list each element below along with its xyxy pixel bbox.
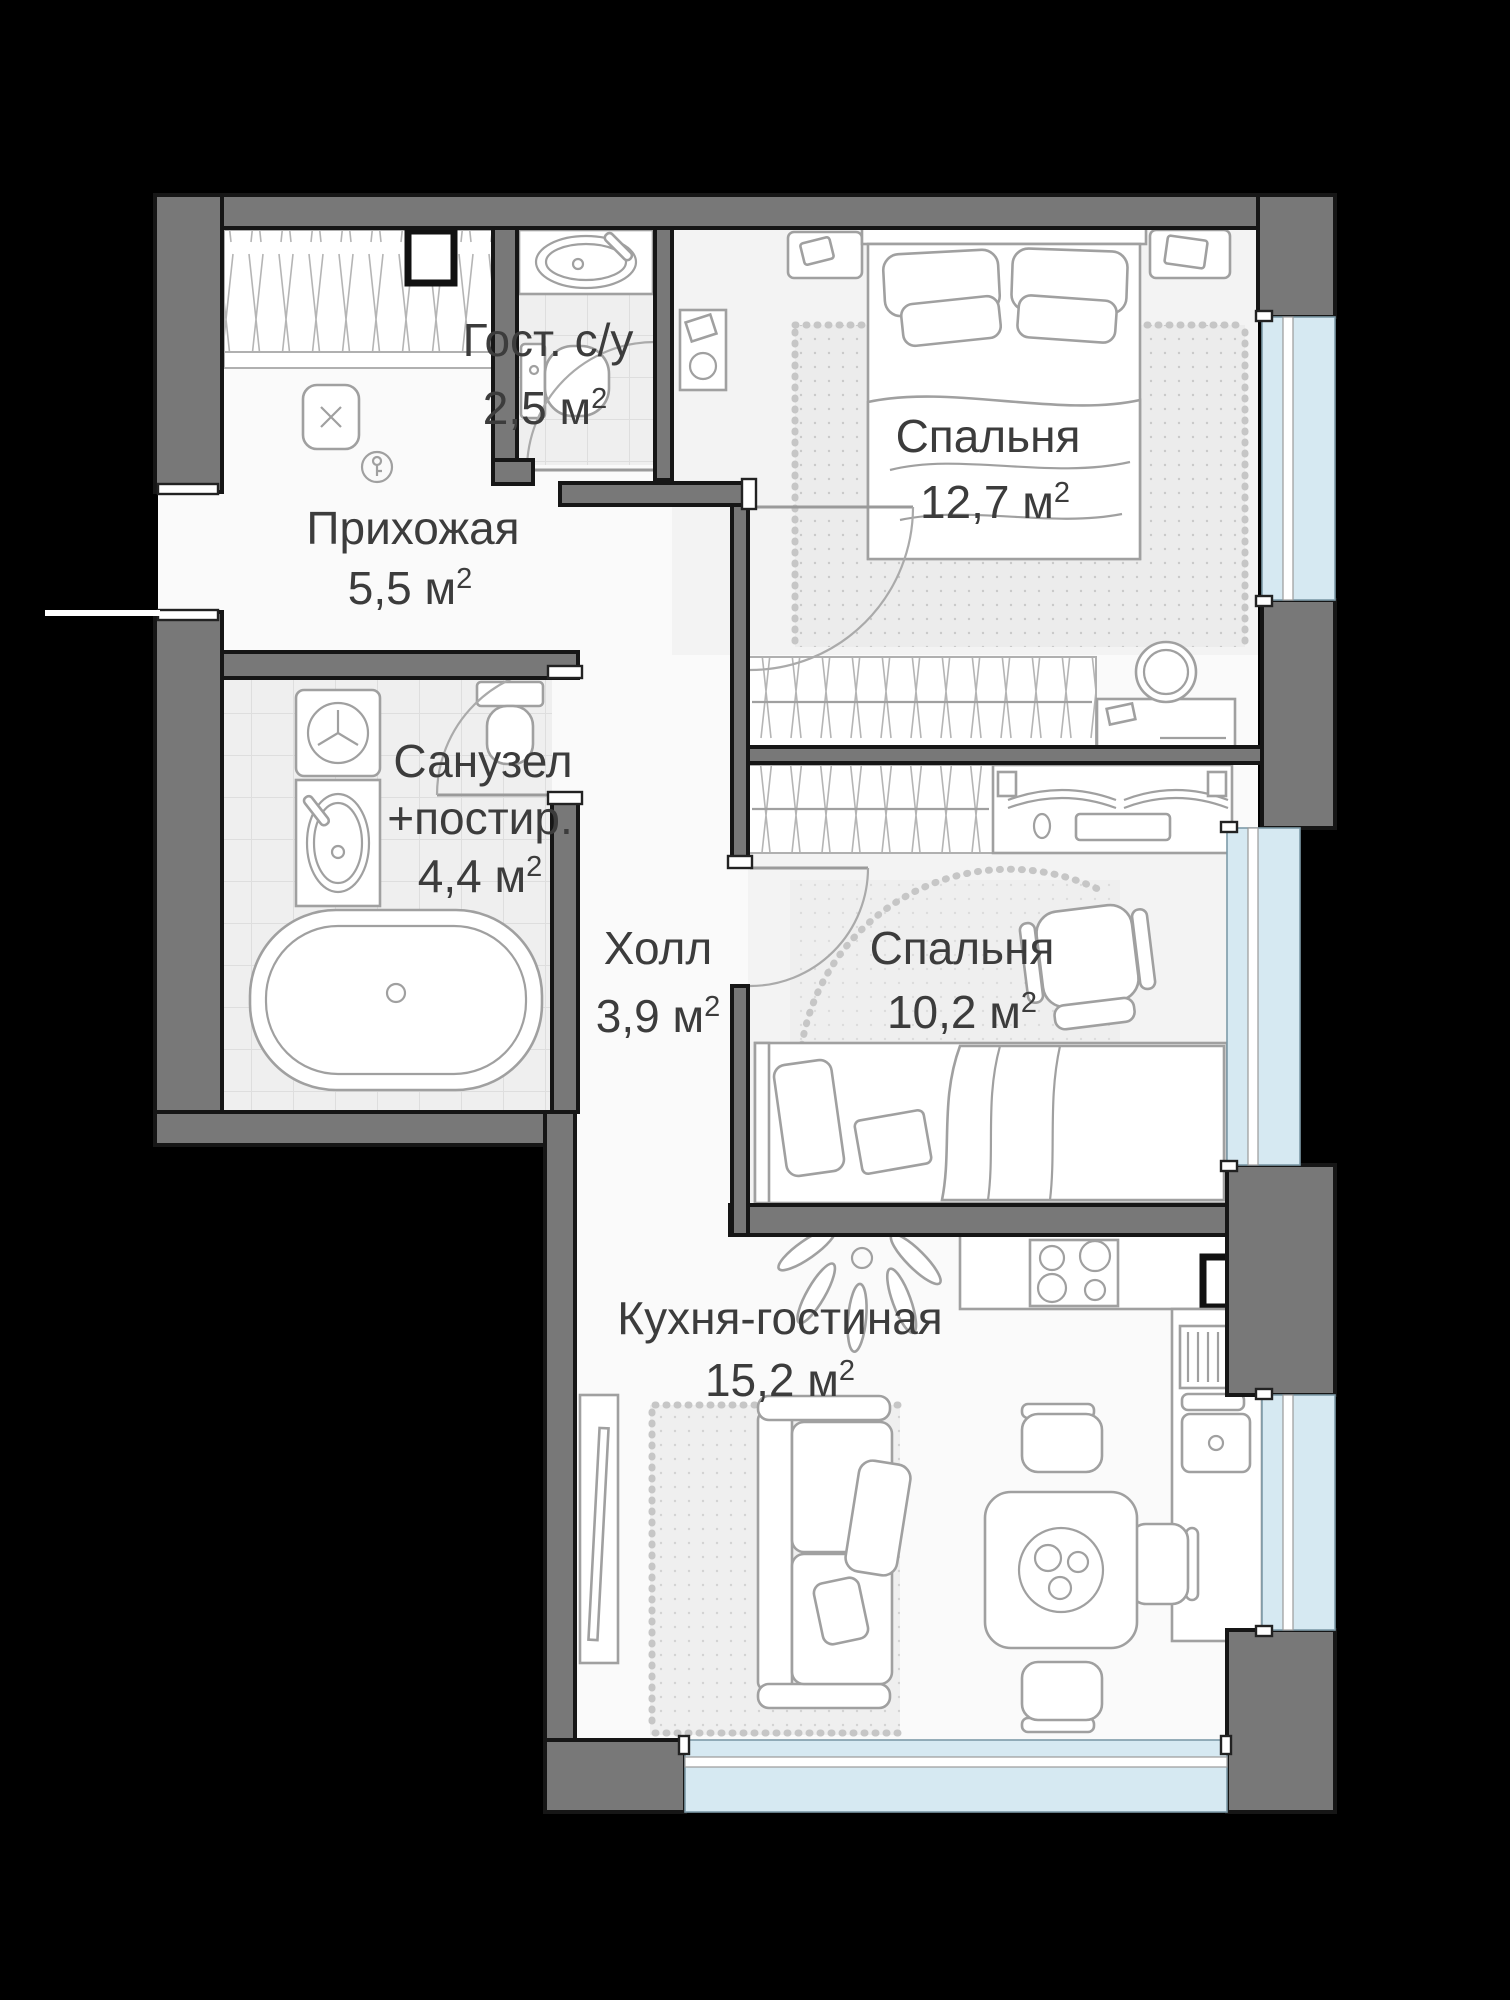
bathtub <box>250 910 542 1090</box>
wall-hall-right-lower <box>732 986 748 1235</box>
entrance-jamb-top <box>158 484 218 494</box>
wall-top <box>155 195 1335 228</box>
wall-hall-stub <box>560 483 750 505</box>
wall-bottom-left <box>545 1740 685 1812</box>
pouf <box>303 385 359 449</box>
room-area-hall: 3,9 м2 <box>596 990 721 1042</box>
bathroom-sink <box>296 780 380 906</box>
entrance-jamb-bottom <box>158 610 218 620</box>
room-label-hallway: Прихожая <box>306 502 519 554</box>
wall-guest-wc-right <box>655 228 672 480</box>
bedroom1-desk <box>680 310 726 390</box>
floor-plan-page: Гост. с/у 2,5 м2 Прихожая 5,5 м2 Спальня… <box>0 0 1510 2000</box>
bedroom2-desk <box>993 765 1232 853</box>
wall-wardrobe-divider <box>748 747 1262 763</box>
room-area-bedroom1: 12,7 м2 <box>920 476 1070 528</box>
room-area-kitchen: 15,2 м2 <box>705 1354 855 1406</box>
wall-bottom-right-block <box>1227 1630 1335 1812</box>
room-label-guest-wc: Гост. с/у <box>463 314 634 366</box>
guest-wc-vanity <box>519 230 653 294</box>
floor-plan-svg: Гост. с/у 2,5 м2 Прихожая 5,5 м2 Спальня… <box>0 0 1510 2000</box>
single-bed <box>755 1043 1227 1203</box>
bathroom-door-jamb-top <box>548 666 582 678</box>
room-label-bathroom-1: Санузел <box>393 735 572 787</box>
wall-kitchen-left <box>545 1112 575 1812</box>
bedroom1-nightstand-right <box>1150 230 1230 278</box>
wall-left-upper <box>155 195 222 492</box>
bedroom1-door-jamb <box>742 479 756 509</box>
room-label-kitchen: Кухня-гостиная <box>617 1292 942 1344</box>
tv-unit <box>580 1395 618 1663</box>
window-kitchen-right <box>1256 1389 1335 1636</box>
room-area-guest-wc: 2,5 м2 <box>483 382 608 434</box>
wall-hall-right-upper <box>732 505 748 866</box>
wall-left-lower <box>155 612 222 1145</box>
bedroom1-nightstand-left <box>788 232 862 278</box>
room-area-hallway: 5,5 м2 <box>348 562 473 614</box>
entrance-door-line <box>45 610 160 616</box>
bedroom2-door-jamb <box>728 856 752 868</box>
window-bedroom2 <box>1221 822 1300 1171</box>
entrance-opening <box>158 492 228 612</box>
wall-bathroom-top <box>222 652 578 678</box>
wall-top-right-block <box>1258 195 1335 317</box>
window-bedroom1 <box>1256 311 1335 606</box>
room-label-hall: Холл <box>604 922 712 974</box>
room-label-bathroom-2: +постир. <box>387 792 572 844</box>
wall-right-pier-2 <box>1227 1165 1335 1395</box>
bedroom2-wardrobe <box>748 765 993 853</box>
room-label-bedroom2: Спальня <box>870 922 1055 974</box>
room-area-bedroom2: 10,2 м2 <box>887 986 1037 1038</box>
wall-bedroom2-bottom <box>730 1205 1227 1235</box>
wall-right-pier-1 <box>1262 600 1335 828</box>
vent-shaft-top <box>408 231 454 283</box>
sofa <box>758 1396 912 1708</box>
washing-machine <box>296 690 380 776</box>
bedroom1-wardrobe <box>748 657 1096 747</box>
window-kitchen-bottom <box>679 1736 1231 1812</box>
wall-bathroom-bottom <box>155 1112 575 1145</box>
wall-guest-wc-bottom <box>493 460 533 484</box>
room-area-bathroom: 4,4 м2 <box>418 850 543 902</box>
room-label-bedroom1: Спальня <box>896 410 1081 462</box>
